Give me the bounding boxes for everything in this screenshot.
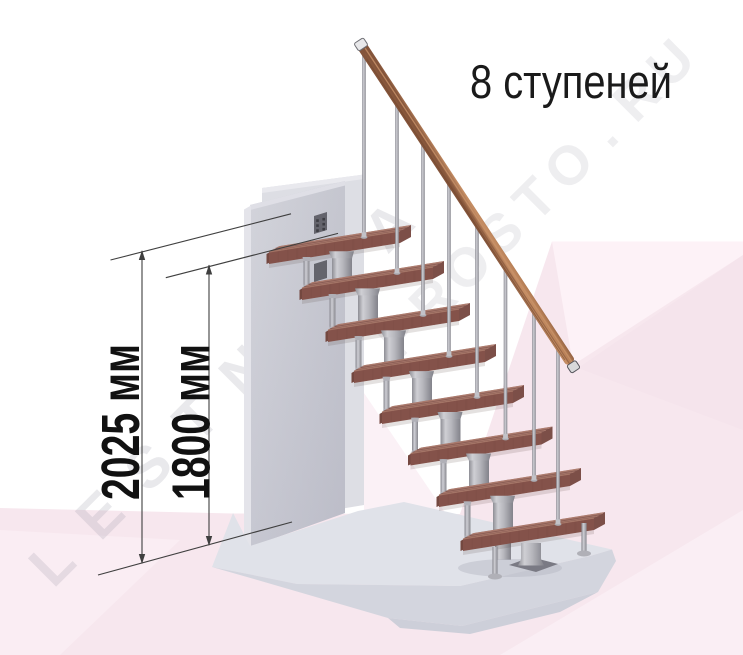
svg-text:2025 мм: 2025 мм [91, 344, 151, 500]
svg-text:8 ступеней: 8 ступеней [470, 55, 672, 108]
svg-text:1800 мм: 1800 мм [162, 344, 222, 500]
